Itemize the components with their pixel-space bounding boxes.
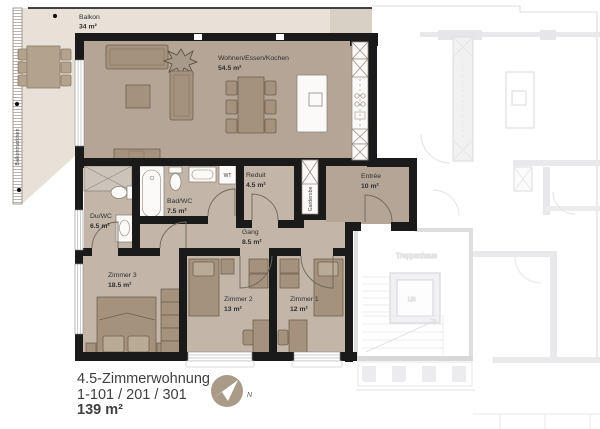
neighbor-stairwell: Treppenhaus Lift [354,228,473,361]
window [276,34,284,40]
room-area-zimmer3: 18.5 m² [108,282,132,289]
room-label-reduit: Reduit [246,172,266,179]
window-west-2 [75,264,83,334]
room-label-zimmer3: Zimmer 3 [108,272,137,279]
desk-zimmer1 [289,320,307,353]
room-area-du: 6.5 m² [90,223,110,230]
kitchen-island [297,75,327,132]
sofa-2 [170,71,193,120]
desk-zimmer2 [253,320,271,353]
window-zimmer2 [186,352,254,367]
room-area-wohnen: 54.5 m² [218,65,242,72]
bed-zimmer2 [189,259,219,316]
sink-du [116,215,133,242]
sink-bad [189,167,216,182]
window-west-1 [75,210,83,250]
shower [84,166,132,191]
north-label: N [247,392,253,399]
room-label-bad: Bad/WC [167,198,192,205]
wt-label: WT [224,173,232,179]
neighbor-room-label: Treppenhaus [396,253,437,260]
washer-tower: WT [219,165,236,184]
kitchen-cabinets [352,42,368,160]
apartment-type-label: 4.5-Zimmerwohnung [77,372,210,388]
room-area-bad: 7.5 m² [167,208,187,215]
floor-plan-page: Treppenhaus Lift Balkonmarkisen [0,0,600,429]
neighbor-kitchen [453,37,534,161]
floor-plan-drawing: Treppenhaus Lift Balkonmarkisen [0,0,600,429]
legend: 4.5-Zimmerwohnung 1-101 / 201 / 301 139 … [77,372,210,419]
nightstand [221,259,234,274]
room-label-wohnen: Wohnen/Essen/Kochen [218,55,289,62]
room-label-entree: Entrée [361,173,381,180]
north-compass: N [211,375,253,407]
total-area-label: 139 m² [77,403,210,419]
room-area-zimmer2: 13 m² [224,306,242,313]
room-area-reduit: 4.5 m² [246,182,266,189]
coffee-table [126,85,150,108]
post-dot [53,14,57,18]
neighbor-lift-label: Lift [408,297,416,303]
room-area-entree: 10 m² [361,183,379,190]
room-label-du: Du/WC [90,213,112,220]
room-area-gang: 8.5 m² [242,239,262,246]
terrace-strip [330,8,372,33]
room-label-gang: Gang [242,229,259,236]
window-zimmer1 [292,352,342,367]
room-label-balkon: Balkon [79,14,100,21]
floor-entree [326,160,410,224]
room-area-zimmer1: 12 m² [290,306,308,313]
toilet-bad [169,167,182,191]
window-living-west [75,60,84,146]
bathtub [139,166,164,221]
post-dot [15,102,19,106]
balkonmarkisen-label: Balkonmarkisen [15,128,21,165]
room-area-balkon: 34 m² [79,24,97,31]
room-label-zimmer1: Zimmer 1 [290,296,319,303]
chair-zimmer1 [278,330,288,345]
balcony-table-set [18,46,71,88]
unit-numbers-label: 1-101 / 201 / 301 [77,388,210,404]
garderobe-label: Garderobe [308,186,314,211]
toilet-du [111,186,134,199]
wardrobe-zimmer3 [161,289,180,354]
window [194,34,202,40]
garderobe-closet: Garderobe [302,160,318,214]
room-label-zimmer2: Zimmer 2 [224,296,253,303]
bed-zimmer3 [97,297,156,356]
post-dot [17,188,21,192]
chair-zimmer2 [243,330,253,345]
sofa [106,45,168,69]
dining-set [226,77,276,133]
